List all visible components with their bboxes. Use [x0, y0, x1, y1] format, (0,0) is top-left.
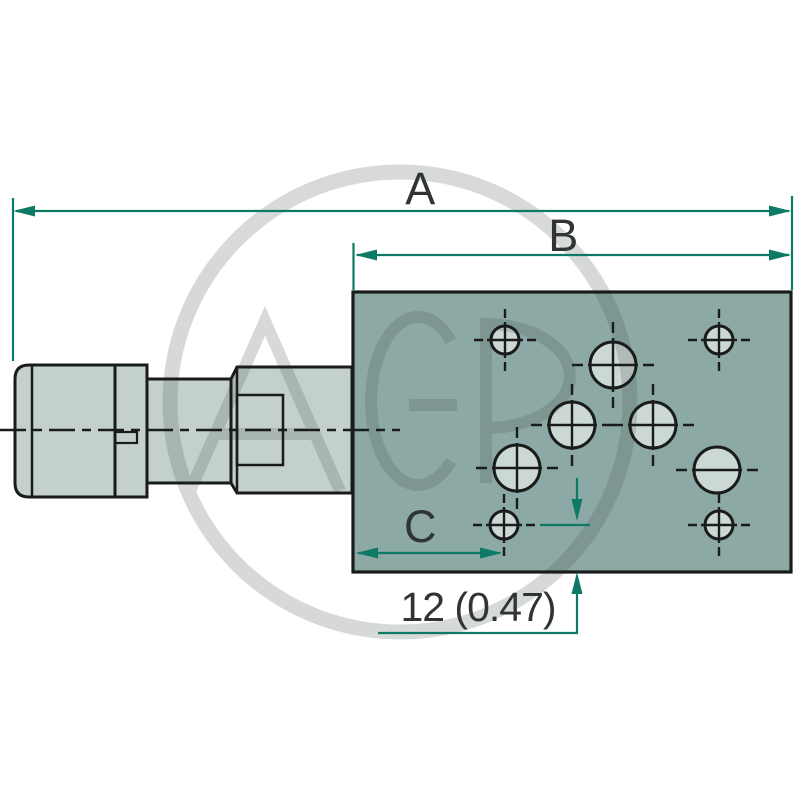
dim-b-label: B	[548, 210, 578, 261]
dim-offset-arrowhead-up	[572, 572, 583, 594]
dim-c-label: C	[404, 501, 436, 552]
dim-a-arrowhead-left	[13, 206, 35, 217]
technical-drawing-canvas: A B C 12 (0.47)	[0, 0, 800, 800]
dim-b-arrowhead-left	[355, 250, 377, 261]
dimension-b: B	[354, 210, 792, 290]
dim-b-arrowhead-right	[769, 250, 791, 261]
dim-a-arrowhead-right	[769, 206, 791, 217]
valve-dimension-diagram: A B C 12 (0.47)	[0, 0, 800, 800]
dim-offset-label: 12 (0.47)	[400, 584, 555, 630]
dim-a-label: A	[405, 163, 435, 214]
